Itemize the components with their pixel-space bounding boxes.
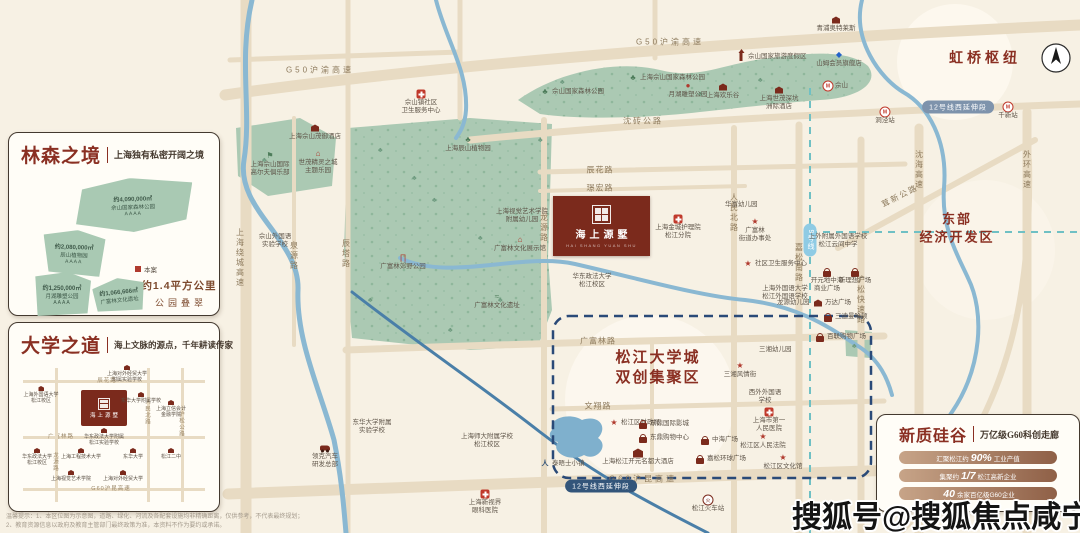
- map-screenshot: ♣♣♣ ♣♣♣ ♣♣♣ ♣♣♣ ♣♣ 海上源墅 HAI SHANG YUAN S…: [0, 0, 1080, 533]
- patch-text: 约1,250,000㎡: [43, 283, 82, 292]
- svg-text:♣: ♣: [498, 297, 503, 304]
- school-icon: [68, 470, 74, 475]
- disclaimer: 温馨提示：1、本区位图为示意图，道路、绿化、河流及各配套设施均非精确距离，仅供参…: [6, 513, 436, 531]
- svg-text:♣: ♣: [478, 235, 483, 242]
- silicon-stat-bar: 汇聚松江约90%工业产值: [899, 451, 1057, 464]
- minimap-school: 上海外国语大学 松江校区: [23, 386, 58, 405]
- park-patch: 约1,250,000㎡月湖雕塑公园AAAA: [33, 272, 91, 316]
- minimap-school: 华东政法大学附属 松江实验学校: [84, 428, 124, 447]
- patch-text: AAAA: [53, 300, 70, 306]
- svg-text:♣: ♣: [698, 91, 703, 98]
- school-icon: [168, 400, 174, 405]
- stat-prefix: 集聚约: [939, 471, 959, 481]
- school-icon: [138, 392, 144, 397]
- project-name-en: HAI SHANG YUAN SHU: [566, 243, 637, 248]
- forest-card-title: 林森之境: [21, 141, 101, 168]
- minimap-road-label: 龙源路: [51, 452, 59, 472]
- minimap-school-label: 上海对外经贸大学 附属实验学校: [107, 371, 147, 384]
- minimap-school: 东华大学: [123, 448, 143, 460]
- svg-text:♣: ♣: [758, 77, 763, 84]
- svg-text:♣: ♣: [368, 297, 373, 304]
- forest-area-caption: 公园叠翠: [137, 296, 221, 309]
- minimap-school: 上海工程技术大学: [61, 448, 101, 460]
- university-card-subtitle: 海上文脉的源点，千年耕读传家: [114, 339, 233, 351]
- svg-text:♣: ♣: [448, 327, 453, 334]
- svg-text:♣: ♣: [412, 175, 417, 182]
- stat-number: 90%: [970, 452, 993, 464]
- minimap-school: 上海立信会计 金融学院: [156, 400, 186, 419]
- school-icon: [130, 448, 136, 453]
- forest-card-subtitle: 上海独有私密开阔之境: [114, 148, 204, 161]
- svg-text:♣: ♣: [852, 343, 857, 350]
- school-icon: [78, 448, 84, 453]
- disclaimer-line: 2、教育资源信息以政府及教育主管部门最终政策为准，本资料不作为要约或承诺。: [6, 522, 436, 531]
- project-marker-icon: [135, 266, 141, 272]
- school-icon: [120, 470, 126, 475]
- stat-prefix: 汇聚松江约: [936, 453, 969, 463]
- minimap-school: 华东政法大学 松江校区: [22, 448, 52, 467]
- svg-text:♣: ♣: [262, 157, 267, 164]
- svg-text:♣: ♣: [538, 137, 543, 144]
- minimap-school-label: 上海外国语大学 松江校区: [23, 392, 58, 405]
- disclaimer-line: 温馨提示：1、本区位图为示意图，道路、绿化、河流及各配套设施均非精确距离，仅供参…: [6, 513, 436, 522]
- school-icon: [168, 448, 174, 453]
- stat-number: 1/7: [960, 470, 977, 482]
- project-name: 海上源墅: [572, 226, 632, 241]
- minimap-project-name: 海上源墅: [88, 411, 120, 419]
- school-icon: [34, 448, 40, 453]
- legend-label: 本案: [144, 264, 157, 274]
- svg-text:♣: ♣: [432, 197, 437, 204]
- university-card-title: 大学之道: [21, 331, 101, 358]
- plane-compass-icon: [1040, 42, 1072, 79]
- divider: [107, 147, 108, 163]
- minimap-school-label: 松江二中: [161, 454, 181, 460]
- divider: [973, 426, 974, 442]
- minimap-school: 松江二中: [161, 448, 181, 460]
- watermark: 搜狐号@搜狐焦点咸宁站: [792, 492, 1080, 533]
- minimap-school-label: 华东政法大学 松江校区: [22, 454, 52, 467]
- svg-text:♣: ♣: [598, 87, 603, 94]
- minimap-road: [147, 368, 150, 502]
- patch-text: AAAA: [125, 210, 143, 217]
- minimap-school: 上海视觉艺术学院: [51, 470, 91, 482]
- forest-area-value: 约1.4平方公里: [137, 278, 221, 293]
- minimap-road-label: 广富林路: [48, 432, 74, 440]
- university-card: 大学之道 海上文脉的源点，千年耕读传家 海上源墅 辰花路广富林路G60沪昆高速龙…: [8, 322, 220, 512]
- university-minimap: 海上源墅 辰花路广富林路G60沪昆高速龙源路人民北路沪松公路上海外国语大学 松江…: [19, 364, 209, 506]
- patch-text: AAAA: [65, 258, 83, 265]
- project-block: 海上源墅 HAI SHANG YUAN SHU: [553, 196, 650, 256]
- park-patch: 约4,090,000㎡佘山国家森林公园AAAA: [72, 176, 194, 234]
- minimap-school: 上海对外经贸大学: [103, 470, 143, 482]
- stat-suffix: 工业产值: [994, 453, 1020, 463]
- silicon-card-subtitle: 万亿级G60科创走廊: [980, 428, 1059, 441]
- minimap-school-label: 华东政法大学附属 松江实验学校: [84, 434, 124, 447]
- patch-text: 月湖雕塑公园: [45, 292, 78, 300]
- divider: [107, 337, 108, 353]
- minimap-school-label: 上海立信会计 金融学院: [156, 406, 186, 419]
- map-legend: 本案: [135, 264, 157, 274]
- forest-highlight: 约1.4平方公里 公园叠翠: [137, 278, 221, 309]
- project-seal-icon: [98, 398, 110, 410]
- minimap-school-label: 上海视觉艺术学院: [51, 476, 91, 482]
- silicon-stat-bar: 集聚约1/7松江高新企业: [899, 469, 1057, 482]
- svg-text:♣: ♣: [378, 147, 383, 154]
- minimap-school-label: 东华大学: [123, 454, 143, 460]
- project-seal-icon: [592, 205, 611, 224]
- school-icon: [124, 365, 130, 370]
- deco-circle: [915, 180, 1055, 320]
- svg-text:♣: ♣: [560, 79, 565, 86]
- park-patch: 约2,080,000㎡辰山植物园AAAA: [42, 229, 106, 277]
- minimap-school: 上海对外经贸大学 附属实验学校: [107, 365, 147, 384]
- minimap-school-label: 上海工程技术大学: [61, 454, 101, 460]
- forest-card: 林森之境 上海独有私密开阔之境 本案 约1.4平方公里 公园叠翠 约4,090,…: [8, 132, 220, 316]
- minimap-school-label: 上海对外经贸大学: [103, 476, 143, 482]
- forest-patch-area: 本案 约1.4平方公里 公园叠翠 约4,090,000㎡佘山国家森林公园AAAA…: [17, 172, 211, 318]
- silicon-card-title: 新质硅谷: [899, 422, 967, 446]
- minimap-road-label: G60沪昆高速: [91, 484, 130, 492]
- stat-suffix: 松江高新企业: [978, 471, 1017, 481]
- school-icon: [38, 386, 44, 391]
- school-icon: [101, 428, 107, 433]
